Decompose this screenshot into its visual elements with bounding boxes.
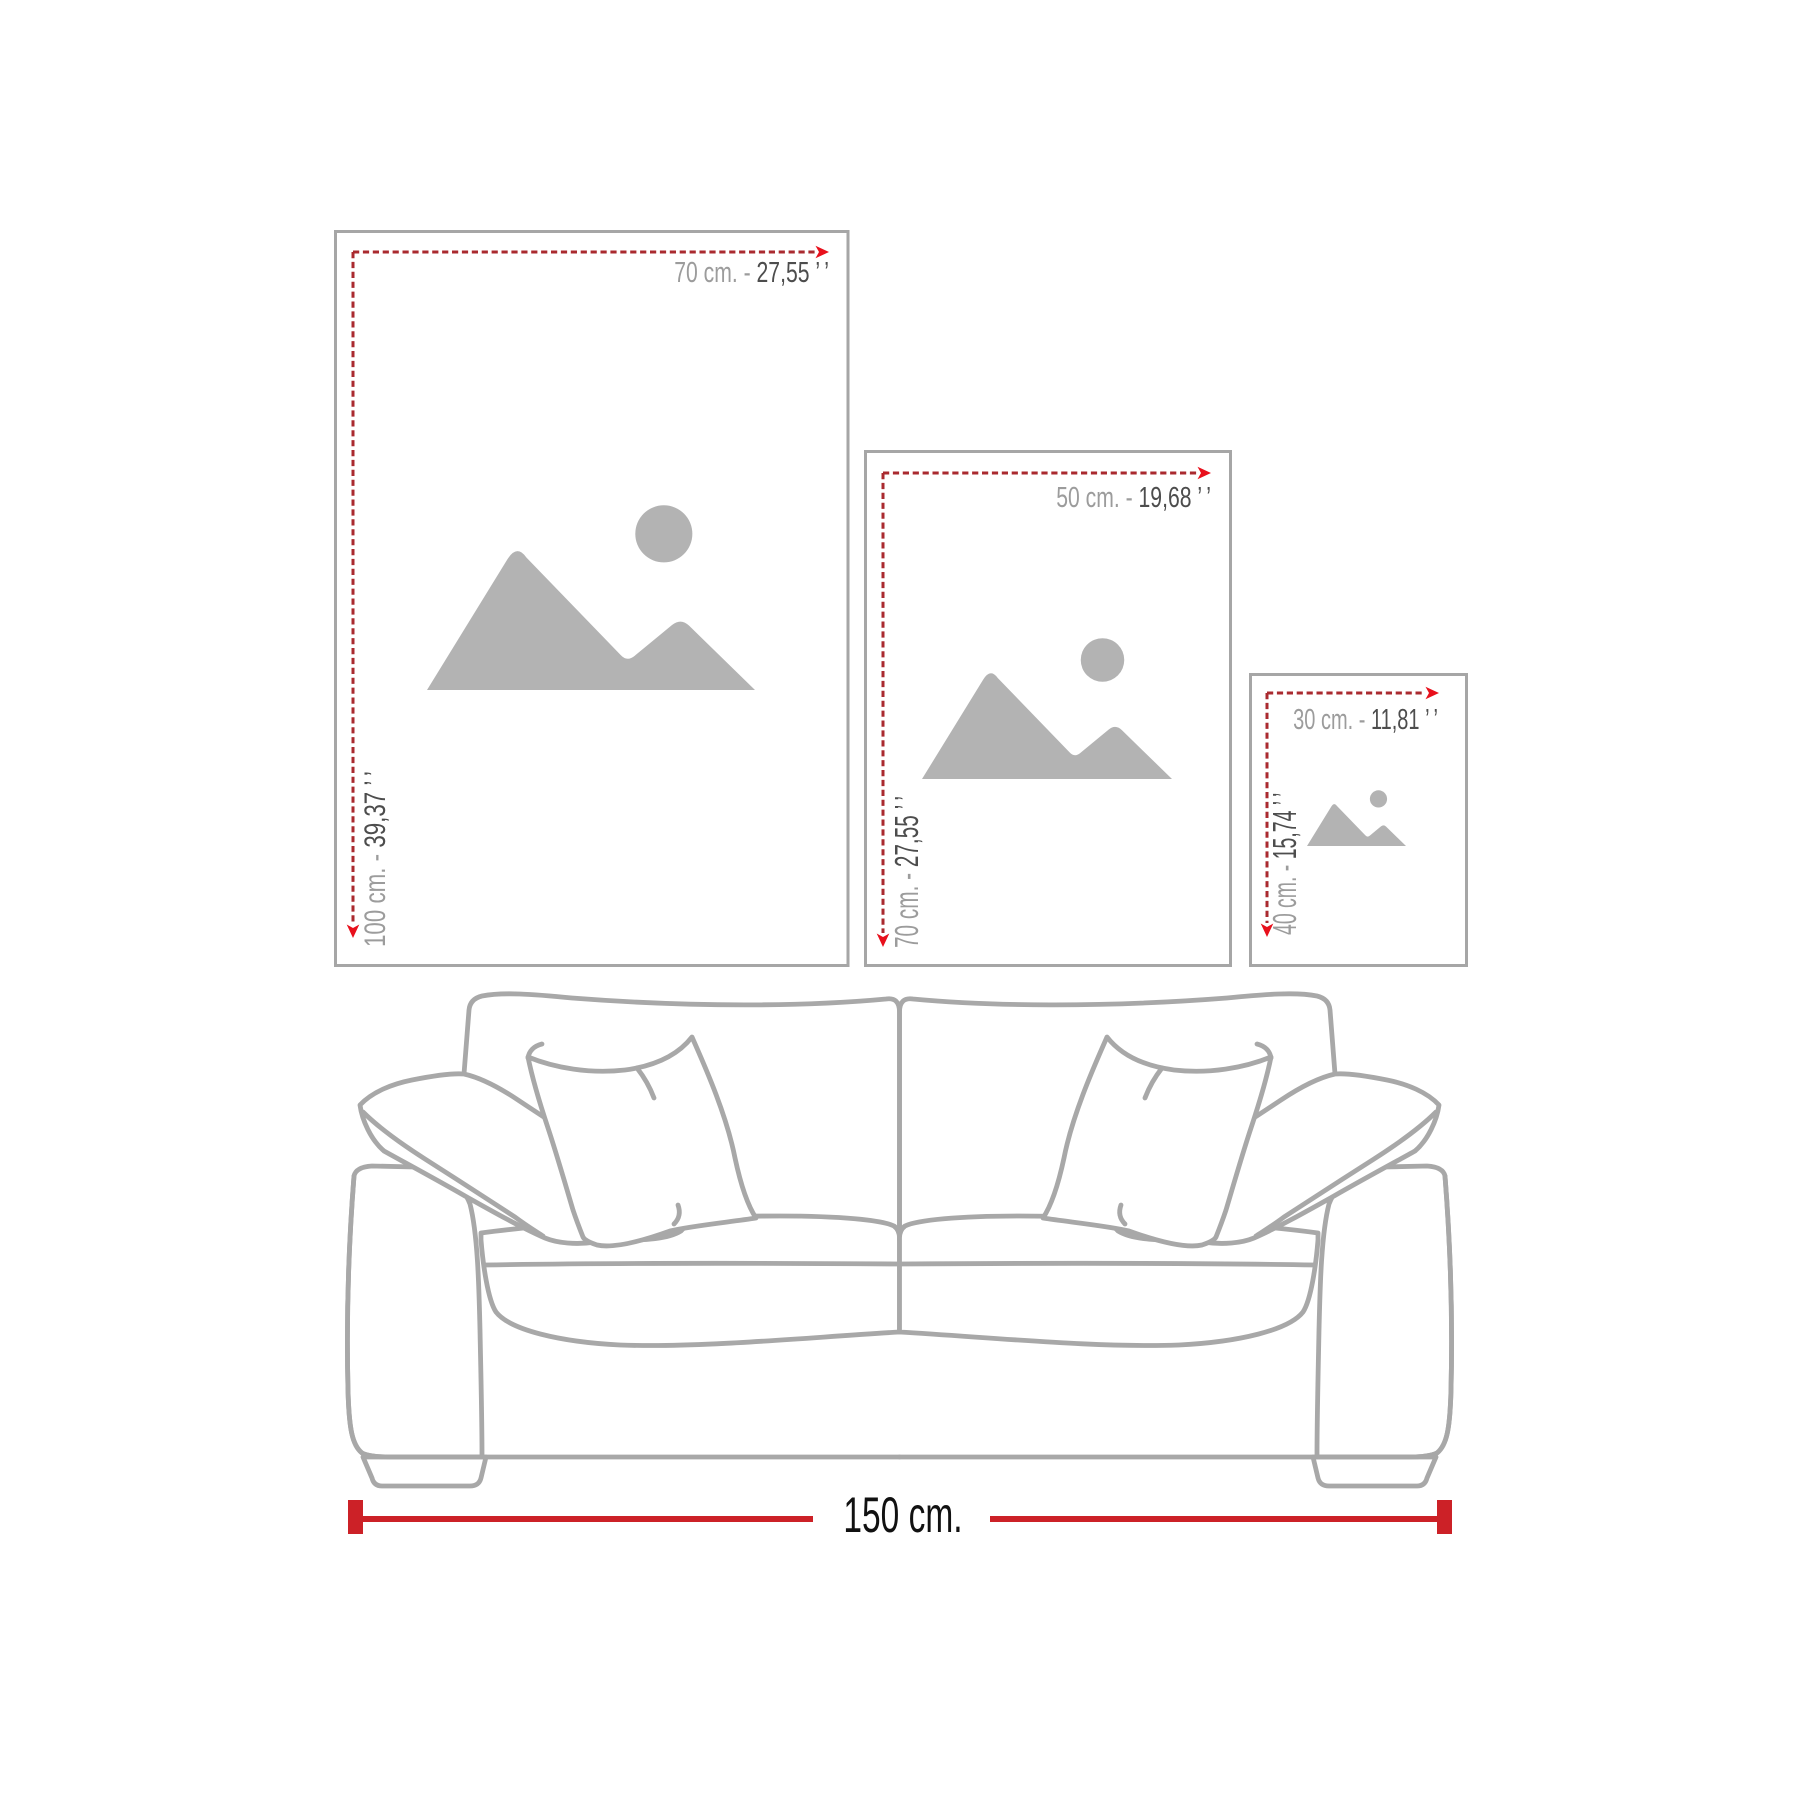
svg-text:150 cm.: 150 cm. — [843, 1487, 962, 1543]
svg-text:50 cm. - 19,68 ’ ’: 50 cm. - 19,68 ’ ’ — [1056, 482, 1211, 514]
svg-text:70 cm. - 27,55 ’ ’: 70 cm. - 27,55 ’ ’ — [674, 257, 829, 289]
svg-text:100 cm. - 39,37 ’ ’: 100 cm. - 39,37 ’ ’ — [358, 771, 392, 947]
svg-text:70 cm. - 27,55 ’ ’: 70 cm. - 27,55 ’ ’ — [888, 796, 925, 948]
svg-text:40 cm. - 15,74 ’ ’: 40 cm. - 15,74 ’ ’ — [1266, 793, 1304, 935]
svg-text:30 cm. - 11,81 ’ ’: 30 cm. - 11,81 ’ ’ — [1293, 703, 1438, 736]
